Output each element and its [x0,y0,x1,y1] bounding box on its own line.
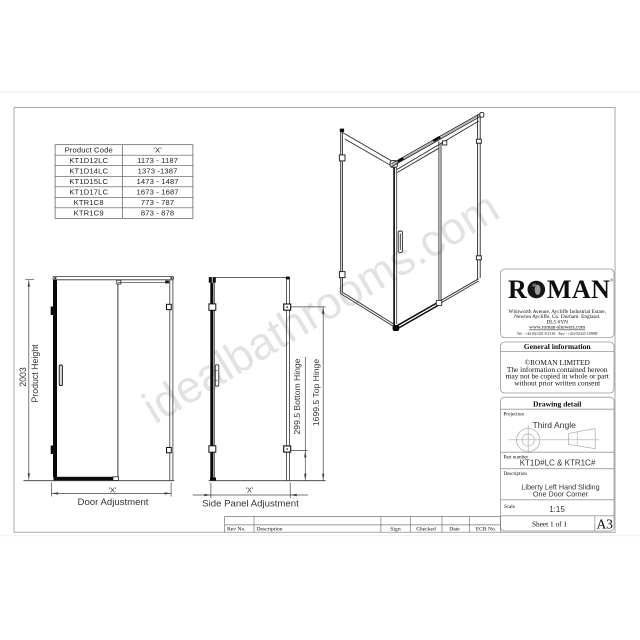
svg-text:KT1D12LC: KT1D12LC [69,156,108,165]
svg-text:KTR1C8: KTR1C8 [74,198,104,207]
svg-text:A3: A3 [596,516,613,531]
svg-text:without prior written consent: without prior written consent [514,378,601,387]
svg-text:Description: Description [257,527,283,533]
svg-text:1373 -1387: 1373 -1387 [138,166,178,175]
svg-text:2003: 2003 [18,367,28,387]
svg-text:KT1D17LC: KT1D17LC [69,187,108,196]
svg-text:Side Panel Adjustment: Side Panel Adjustment [202,499,299,510]
svg-text:1:15: 1:15 [549,505,565,514]
svg-text:1673 - 1687: 1673 - 1687 [137,187,179,196]
svg-text:Product Code: Product Code [65,145,113,154]
svg-text:Product Height: Product Height [30,344,40,403]
svg-text:873 - 878: 873 - 878 [141,208,174,217]
svg-text:Sign: Sign [390,527,400,533]
svg-text:KTR1C9: KTR1C9 [74,208,104,217]
svg-text:299.5 Bottom Hinge: 299.5 Bottom Hinge [292,358,302,434]
svg-text:General information: General information [524,342,592,351]
svg-text:Checked: Checked [416,527,436,533]
svg-text:Third Angle: Third Angle [532,420,576,430]
svg-text:773 - 787: 773 - 787 [141,198,174,207]
svg-text:Door Adjustment: Door Adjustment [78,497,149,508]
svg-text:1699.5 Top Hinge: 1699.5 Top Hinge [311,359,321,426]
svg-text:KT1D14LC: KT1D14LC [69,166,108,175]
svg-text:Drawing detail: Drawing detail [533,399,581,408]
svg-text:1473 - 1487: 1473 - 1487 [137,177,179,186]
svg-text:KT1D#LC & KTR1C#: KT1D#LC & KTR1C# [520,459,596,468]
svg-text:1173 - 1187: 1173 - 1187 [137,156,178,165]
svg-text:®: ® [610,278,614,283]
svg-text:'X': 'X' [153,145,162,154]
svg-text:Scale: Scale [504,505,516,510]
svg-text:ECR No.: ECR No. [476,527,497,533]
svg-text:KT1D15LC: KT1D15LC [69,177,108,186]
svg-text:Description: Description [504,472,528,477]
svg-text:'X': 'X' [246,485,254,494]
svg-text:Sheet 1 of 1: Sheet 1 of 1 [532,520,567,529]
svg-text:R: R [508,275,527,304]
svg-text:'X': 'X' [109,486,117,495]
svg-text:Rev No.: Rev No. [227,527,246,533]
svg-text:Tel: - +44 (0)1325 311318 F: Tel: - +44 (0)1325 311318 Fax: - +44 (0)… [517,332,598,336]
svg-text:MAN: MAN [547,275,610,304]
svg-text:Projection: Projection [504,412,525,417]
svg-text:Date: Date [449,527,460,533]
svg-text:One Door Corner: One Door Corner [533,490,589,499]
svg-text:www.roman-showers.com: www.roman-showers.com [529,325,586,331]
